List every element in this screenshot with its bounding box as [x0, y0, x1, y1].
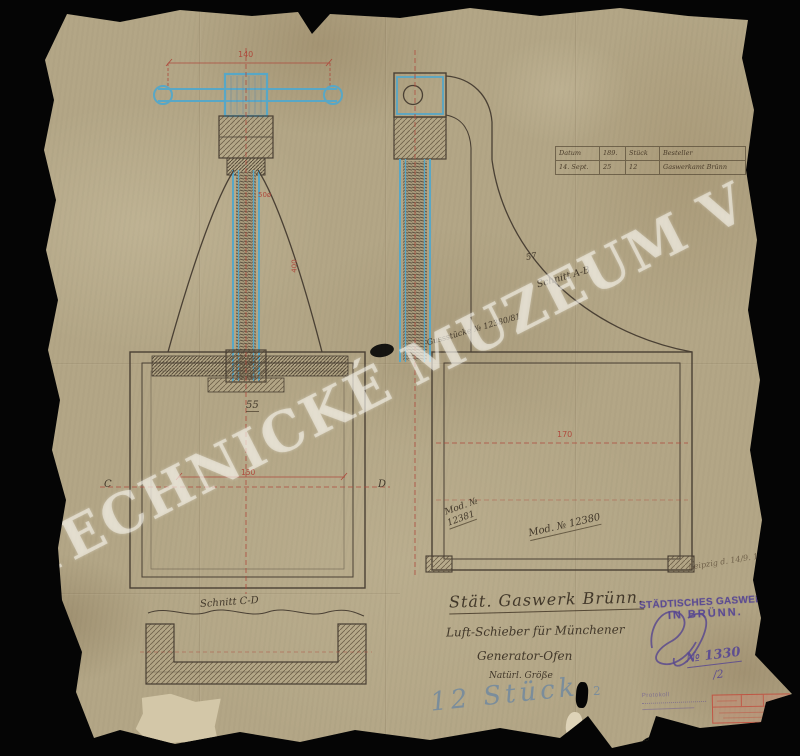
title-subject-2: Generator-Ofen	[477, 649, 572, 663]
dim-spindle-length: 400	[291, 259, 299, 272]
order-table-cell: Besteller	[660, 147, 746, 161]
registry-sub: /2	[712, 667, 724, 681]
order-table-cell: 25	[600, 161, 626, 175]
red-stamp-text-line	[723, 717, 771, 719]
red-stamp-text-line	[717, 700, 737, 701]
valve-box-right	[426, 352, 694, 572]
protokoll-stamp: Protokoll	[642, 691, 707, 710]
handle-bar	[154, 74, 342, 116]
order-table-cell: Stück	[626, 147, 660, 161]
red-stamp-divider	[763, 695, 764, 706]
order-table-cell: Datum	[556, 147, 600, 161]
red-stamp-divider	[741, 695, 742, 706]
side-section	[394, 50, 694, 576]
drawing-sheet: 140 50ø 400 55 150 170 57 Schnitt A-B Sc…	[0, 0, 800, 756]
gland-nut-right	[394, 117, 446, 159]
label-letter-c: C	[104, 479, 112, 490]
label-letter-d: D	[378, 479, 386, 490]
dim-spindle-diameter: 50ø	[258, 191, 271, 199]
scanner-background: 140 50ø 400 55 150 170 57 Schnitt A-B Sc…	[0, 0, 800, 756]
dim-gland-width: 55	[246, 400, 259, 412]
order-table-cell: Gaswerkamt Brünn	[660, 161, 746, 175]
quantity-mark: 2	[593, 684, 601, 698]
order-table-cell: 12	[626, 161, 660, 175]
front-elevation	[100, 48, 390, 594]
technical-drawing	[0, 0, 800, 756]
order-table-cell: 14. Sept.	[556, 161, 600, 175]
order-table: Datum 189. Stück Besteller 14. Sept. 25 …	[555, 146, 746, 175]
dim-box-left: 150	[241, 468, 255, 477]
dim-handle-width: 140	[238, 50, 253, 59]
red-registry-stamp	[712, 693, 790, 723]
spindle-head	[394, 73, 446, 117]
red-stamp-text-line	[719, 712, 775, 714]
duct-profile	[446, 76, 692, 352]
order-table-cell: 189.	[600, 147, 626, 161]
paper-fragment	[135, 693, 221, 748]
handle-eye	[404, 86, 423, 105]
red-stamp-divider	[713, 705, 789, 707]
section-cd-drawing	[140, 610, 372, 684]
dim-box-right: 170	[557, 430, 572, 439]
